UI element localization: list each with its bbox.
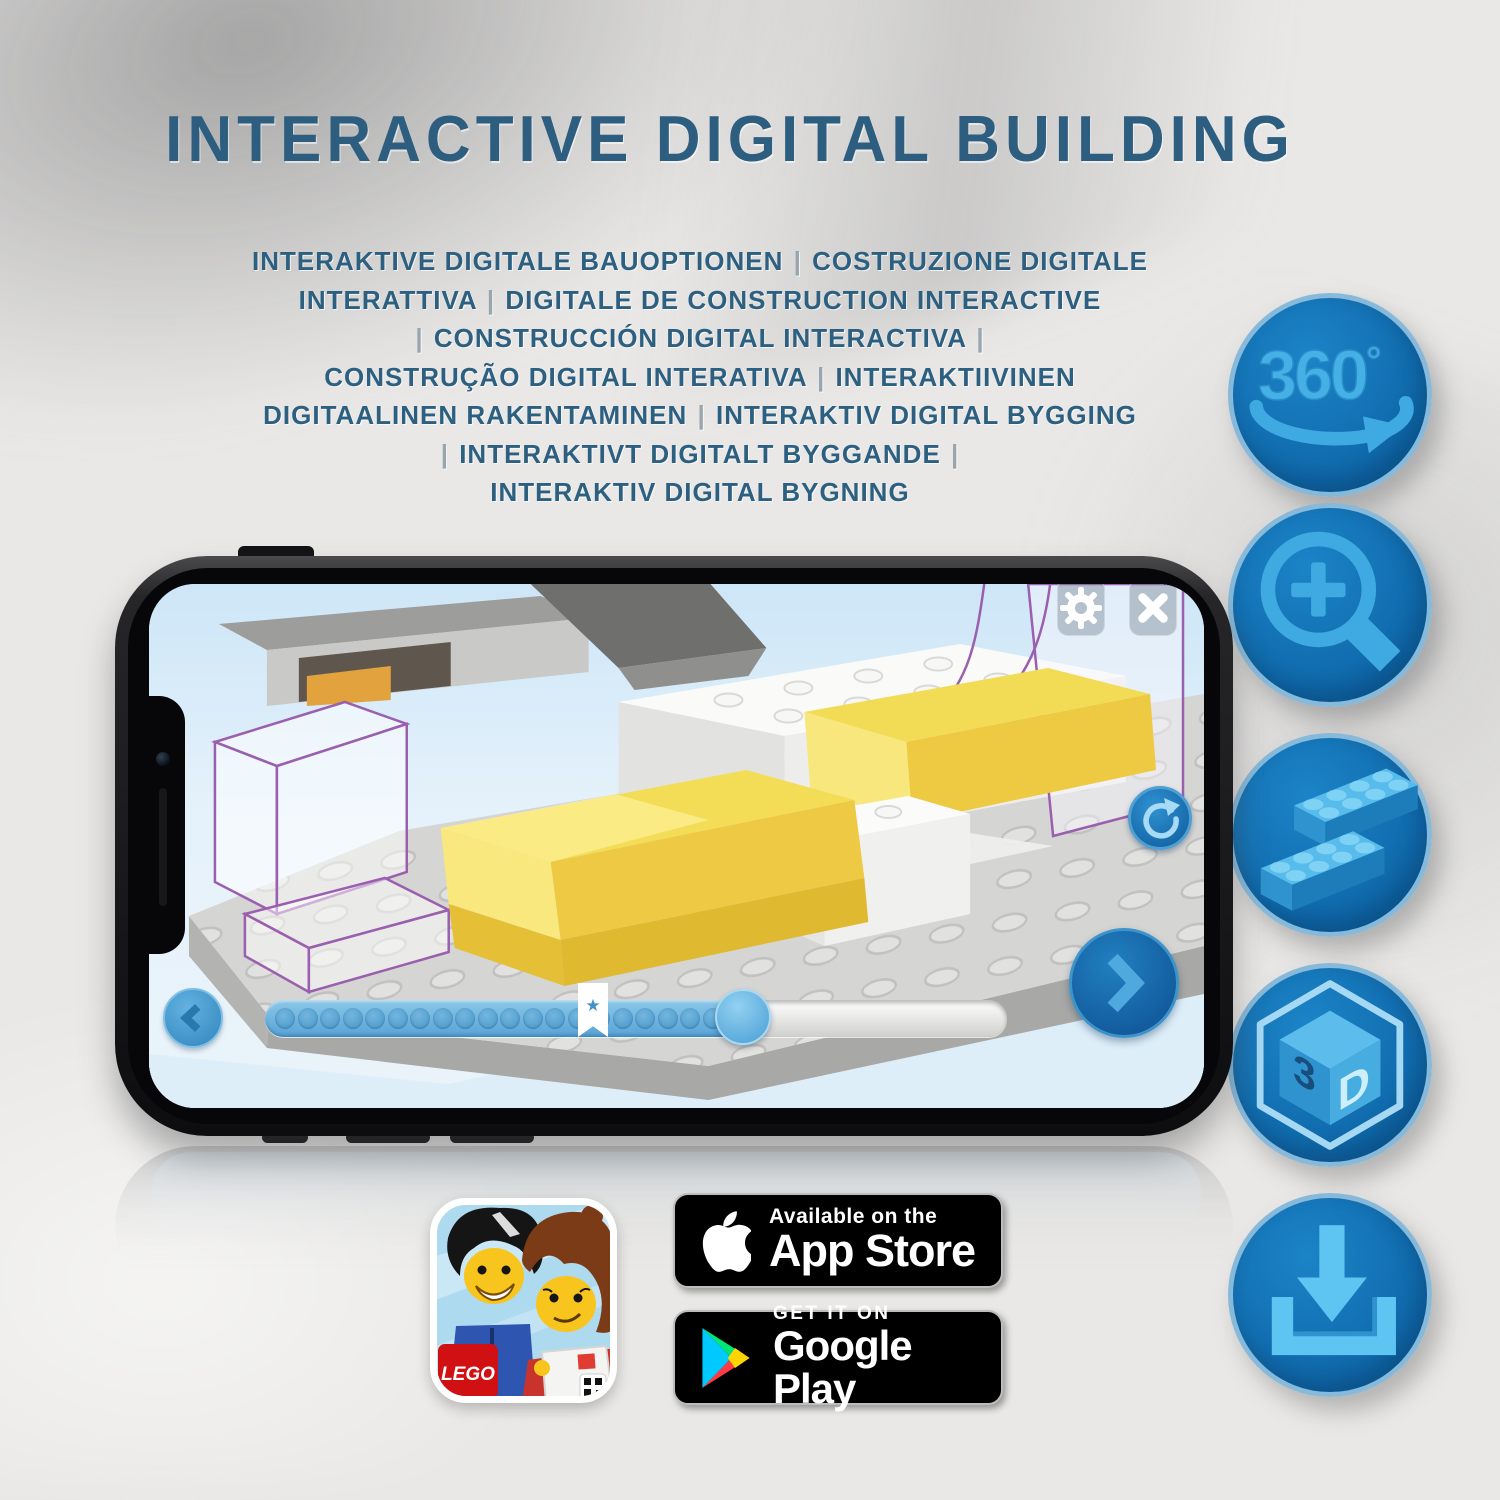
chevron-right-icon — [1080, 939, 1168, 1027]
apple-logo-icon — [697, 1209, 751, 1273]
google-play-icon — [697, 1326, 755, 1390]
subtitle-line: CONSTRUÇÃO DIGITAL INTERATIVA | INTERAKT… — [180, 358, 1220, 397]
progress-fill — [265, 1000, 743, 1037]
subtitle-line: | INTERAKTIVT DIGITALT BYGGANDE | — [180, 435, 1220, 474]
phone-screen — [149, 584, 1204, 1108]
close-button[interactable] — [1129, 584, 1177, 636]
page-title: INTERACTIVE DIGITAL BUILDING — [0, 102, 1460, 177]
badge-download — [1228, 1193, 1432, 1397]
subtitle-line: INTERATTIVA | DIGITALE DE CONSTRUCTION I… — [180, 281, 1220, 320]
zoom-in-icon — [1233, 508, 1427, 702]
multilingual-subtitle: INTERAKTIVE DIGITALE BAUOPTIONEN | COSTR… — [180, 242, 1220, 512]
3d-cube-icon: 3 D — [1233, 968, 1427, 1162]
download-icon — [1233, 1198, 1427, 1392]
svg-text:360°: 360° — [1258, 336, 1380, 414]
lego-app-icon: LEGO — [430, 1198, 617, 1403]
subtitle-line: DIGITAALINEN RAKENTAMINEN | INTERAKTIV D… — [180, 396, 1220, 435]
badge-lego-bricks — [1228, 733, 1432, 937]
next-step-button[interactable] — [1069, 928, 1179, 1038]
google-play-tagline: GET IT ON — [773, 1304, 1001, 1324]
gear-icon — [1060, 587, 1102, 629]
close-icon — [1132, 587, 1174, 629]
app-store-name: App Store — [769, 1228, 975, 1275]
rotate-360-icon: 360° — [1233, 298, 1427, 492]
badge-360-rotation: 360° — [1228, 293, 1432, 497]
badge-zoom — [1228, 503, 1432, 707]
earpiece-speaker — [159, 788, 167, 906]
lego-bricks-icon — [1233, 738, 1427, 932]
badge-3d-view: 3 D — [1228, 963, 1432, 1167]
progress-dots — [275, 1008, 723, 1029]
lego-minifigures-art: LEGO — [430, 1198, 617, 1403]
subtitle-line: INTERAKTIVE DIGITALE BAUOPTIONEN | COSTR… — [180, 242, 1220, 281]
progress-thumb[interactable] — [715, 989, 771, 1045]
settings-button[interactable] — [1057, 584, 1105, 636]
reset-view-button[interactable] — [1128, 786, 1192, 850]
front-camera — [156, 752, 170, 766]
smartphone — [115, 556, 1233, 1136]
previous-step-button[interactable] — [163, 988, 223, 1048]
svg-text:LEGO: LEGO — [441, 1364, 495, 1385]
subtitle-line: | CONSTRUCCIÓN DIGITAL INTERACTIVA | — [180, 319, 1220, 358]
subtitle-line: INTERAKTIV DIGITAL BYGNING — [180, 473, 1220, 512]
rotate-reset-icon — [1138, 796, 1182, 840]
app-store-badge[interactable]: Available on the App Store — [673, 1193, 1003, 1288]
chevron-left-icon — [170, 995, 216, 1041]
build-progress-bar[interactable] — [265, 1000, 1007, 1037]
phone-notch — [149, 696, 185, 954]
google-play-badge[interactable]: GET IT ON Google Play — [673, 1310, 1003, 1405]
google-play-name: Google Play — [773, 1324, 1001, 1411]
